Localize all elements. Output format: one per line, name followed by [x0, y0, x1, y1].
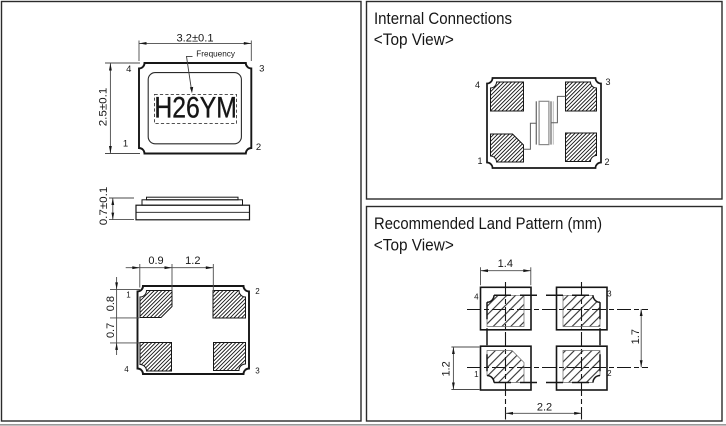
- svg-text:3.2±0.1: 3.2±0.1: [177, 32, 214, 44]
- svg-text:2: 2: [255, 287, 260, 296]
- svg-text:1.7: 1.7: [630, 329, 642, 344]
- svg-text:1: 1: [126, 291, 131, 300]
- svg-text:4: 4: [124, 365, 129, 374]
- svg-text:2.2: 2.2: [537, 401, 552, 413]
- svg-text:1: 1: [474, 370, 479, 379]
- svg-text:0.7±0.1: 0.7±0.1: [98, 187, 110, 226]
- svg-text:1.2: 1.2: [185, 255, 200, 267]
- svg-text:4: 4: [475, 80, 480, 90]
- svg-text:4: 4: [126, 64, 131, 75]
- svg-text:3: 3: [259, 64, 264, 75]
- svg-text:1.4: 1.4: [498, 258, 513, 270]
- svg-text:0.7: 0.7: [105, 323, 117, 338]
- svg-text:3: 3: [255, 367, 260, 376]
- svg-text:2: 2: [256, 142, 261, 153]
- svg-text:4: 4: [474, 292, 479, 301]
- svg-text:<Top View>: <Top View>: [374, 236, 454, 254]
- svg-text:3: 3: [605, 77, 610, 87]
- svg-text:Frequency: Frequency: [196, 49, 236, 58]
- svg-text:3: 3: [607, 290, 612, 299]
- svg-text:2: 2: [604, 157, 609, 167]
- svg-text:<Top View>: <Top View>: [374, 31, 454, 49]
- svg-text:2.5±0.1: 2.5±0.1: [98, 88, 110, 127]
- svg-text:Internal Connections: Internal Connections: [374, 10, 512, 28]
- svg-text:1: 1: [477, 156, 482, 166]
- svg-text:Recommended Land Pattern (mm): Recommended Land Pattern (mm): [374, 215, 602, 233]
- svg-text:1.2: 1.2: [440, 361, 452, 376]
- svg-text:1: 1: [123, 138, 128, 149]
- svg-text:0.9: 0.9: [148, 255, 163, 267]
- svg-text:0.8: 0.8: [105, 296, 117, 311]
- svg-text:2: 2: [607, 369, 612, 378]
- svg-text:H26YM: H26YM: [154, 91, 237, 124]
